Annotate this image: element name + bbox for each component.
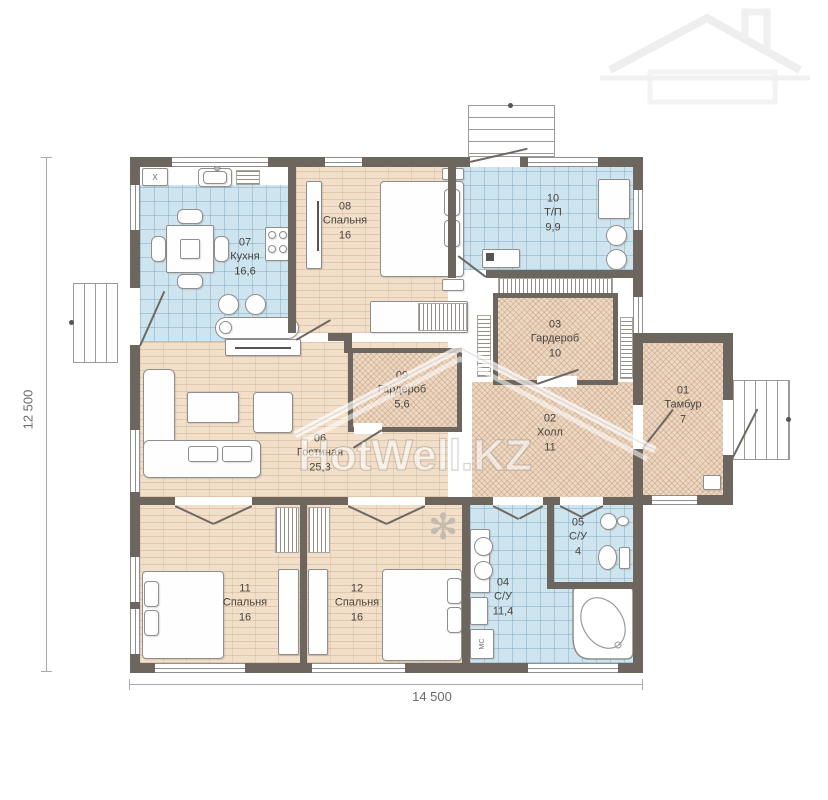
room-area: 11 [537, 440, 563, 454]
burner [268, 245, 276, 253]
window [130, 185, 140, 230]
room-area: 25,3 [297, 460, 343, 474]
dining-table-center [180, 239, 200, 259]
coffee-table [187, 392, 239, 423]
bar-stool [245, 294, 266, 315]
wall [252, 497, 348, 505]
room-label-01: 01Тамбур7 [664, 384, 701, 427]
room-label-06: 06Гостиная25,3 [297, 432, 343, 475]
wall [543, 497, 560, 505]
nightstand [442, 279, 464, 291]
room-number: 06 [297, 432, 343, 446]
floor-plan-canvas: 12 500 14 500 [0, 0, 828, 800]
sink-base [617, 516, 629, 526]
porch-steps-left [73, 283, 118, 363]
wall [300, 505, 307, 663]
house-plan: X [130, 157, 643, 673]
pillow [447, 607, 462, 633]
wardrobe [308, 569, 328, 655]
room-area: 7 [664, 412, 701, 426]
kitchen-sink-bowl [203, 171, 227, 184]
drainboard [236, 170, 260, 185]
chair [177, 209, 203, 224]
room-area: 4 [569, 544, 587, 558]
room-label-08: 08Спальня16 [323, 200, 367, 243]
room-name: Гардероб [531, 332, 579, 346]
tv [235, 347, 291, 349]
wardrobe-shelves [620, 317, 633, 379]
dimension-width-label: 14 500 [400, 689, 464, 704]
toilet-bowl [598, 545, 617, 570]
room-label-02: 02Холл11 [537, 412, 563, 455]
wall [486, 270, 633, 278]
pillow [144, 610, 159, 636]
dresser [306, 181, 322, 269]
window [528, 663, 618, 673]
burner [279, 245, 287, 253]
porch-marker [508, 103, 513, 108]
window [172, 157, 268, 167]
room-name: Т/П [544, 206, 562, 220]
wall [425, 497, 493, 505]
room-number: 11 [223, 582, 267, 596]
room-name: Спальня [323, 214, 367, 228]
room-area: 5,6 [378, 397, 426, 411]
room-label-07: 07Кухня16,6 [230, 236, 259, 279]
room-label-05: 05С/У4 [569, 516, 587, 559]
bar-counter-end [219, 321, 232, 334]
dimension-tick [129, 679, 130, 690]
porch-marker [69, 320, 74, 325]
porch-steps-right [733, 380, 790, 460]
room-area: 16 [335, 610, 379, 624]
room-area: 16 [223, 610, 267, 624]
cabinet [470, 597, 488, 625]
toilet-tank [619, 547, 630, 569]
room-number: 08 [323, 200, 367, 214]
dimension-height-label: 12 500 [21, 382, 36, 438]
room-name: Тамбур [664, 398, 701, 412]
boiler-panel [486, 253, 494, 261]
door-opening [723, 400, 733, 455]
dimension-tick [41, 157, 52, 158]
sofa-cushion [188, 446, 218, 462]
wardrobe-rail [498, 278, 613, 294]
room-area: 11,4 [493, 604, 514, 618]
wall [723, 333, 733, 400]
cabinet [703, 475, 721, 490]
wall [723, 455, 733, 505]
room-area: 9,9 [544, 220, 562, 234]
window [528, 157, 598, 167]
room-number: 12 [335, 582, 379, 596]
porch-marker [786, 417, 791, 422]
room-area: 10 [531, 346, 579, 360]
chair [214, 236, 229, 262]
window [130, 609, 140, 654]
wardrobe-shelves [477, 315, 491, 377]
window [155, 663, 245, 673]
wall [547, 582, 633, 589]
window [130, 557, 140, 602]
sofa-cushion [222, 446, 252, 462]
pillow [144, 581, 159, 607]
armchair [253, 392, 293, 433]
wall [140, 497, 175, 505]
wall [288, 167, 296, 333]
sink [474, 561, 493, 580]
room-number: 01 [664, 384, 701, 398]
hotwell-house-logo-icon [595, 2, 828, 107]
window [633, 190, 643, 230]
room-name: Спальня [223, 596, 267, 610]
room-number: 09 [378, 369, 426, 383]
burner [279, 231, 287, 239]
boiler-tank [606, 249, 627, 270]
room-label-09: 09Гардероб5,6 [378, 369, 426, 412]
window [130, 430, 140, 492]
washing-machine-label: МС [467, 632, 497, 656]
door-opening [130, 288, 140, 345]
room-label-11: 11Спальня16 [223, 582, 267, 625]
wall [633, 449, 643, 663]
wardrobe-rail [275, 507, 299, 553]
window [325, 157, 362, 167]
room-area: 16,6 [230, 264, 259, 278]
wardrobe-rail [418, 303, 467, 331]
dimension-line-horizontal [130, 684, 643, 685]
wall [633, 333, 733, 343]
room-number: 02 [537, 412, 563, 426]
dimension-tick [642, 679, 643, 690]
room-number: 03 [531, 318, 579, 332]
room-label-12: 12Спальня16 [335, 582, 379, 625]
room-label-03: 03Гардероб10 [531, 318, 579, 361]
window [633, 297, 643, 333]
room-name: С/У [569, 530, 587, 544]
sink [600, 513, 617, 530]
sink [474, 537, 493, 556]
room-number: 10 [544, 192, 562, 206]
chair [177, 274, 203, 289]
dimension-tick [41, 671, 52, 672]
burner [268, 231, 276, 239]
cabinet [598, 179, 630, 219]
porch-steps-top [468, 105, 555, 157]
room-label-04: 04С/У11,4 [493, 576, 514, 619]
wall [462, 505, 470, 663]
room-number: 07 [230, 236, 259, 250]
wall [547, 505, 554, 589]
pillow [447, 578, 462, 604]
wall [603, 497, 633, 505]
room-name: С/У [493, 590, 514, 604]
plant-icon: ✻ [428, 509, 458, 545]
room-label-10: 10Т/П9,9 [544, 192, 562, 235]
door-opening [633, 405, 643, 449]
window [652, 495, 697, 505]
wardrobe [278, 569, 299, 655]
wall [448, 167, 456, 278]
room-name: Холл [537, 426, 563, 440]
kitchen-unit-label: X [142, 168, 168, 186]
room-number: 05 [569, 516, 587, 530]
room-name: Спальня [335, 596, 379, 610]
room-area: 16 [323, 228, 367, 242]
wall [344, 333, 352, 353]
room-number: 04 [493, 576, 514, 590]
window [312, 663, 405, 673]
tv [317, 201, 319, 251]
boiler-tank [606, 225, 627, 246]
bar-stool [218, 294, 239, 315]
chair [151, 236, 166, 262]
room-name: Кухня [230, 250, 259, 264]
dimension-line-vertical [46, 158, 47, 672]
room-name: Гардероб [378, 383, 426, 397]
room-name: Гостиная [297, 446, 343, 460]
wardrobe-rail [308, 507, 330, 553]
